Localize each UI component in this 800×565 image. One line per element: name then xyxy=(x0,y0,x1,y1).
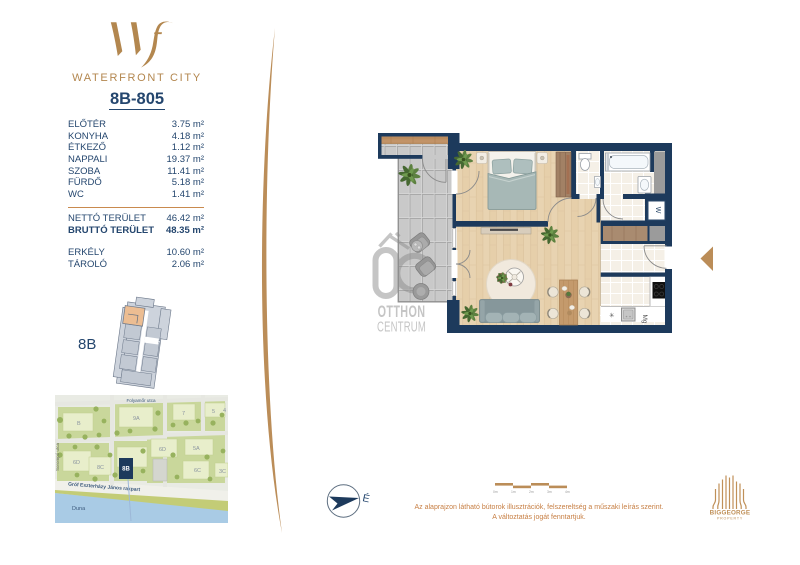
svg-text:9A: 9A xyxy=(133,416,140,422)
svg-text:3C: 3C xyxy=(219,469,226,475)
svg-text:5A: 5A xyxy=(193,446,200,452)
svg-text:7: 7 xyxy=(182,411,185,417)
svg-text:8C: 8C xyxy=(97,465,104,471)
svg-text:6D: 6D xyxy=(73,460,80,466)
svg-text:6C: 6C xyxy=(194,468,201,474)
svg-text:PROPERTY: PROPERTY xyxy=(717,517,743,521)
svg-text:Duna: Duna xyxy=(72,506,86,512)
svg-text:1m: 1m xyxy=(511,490,516,494)
svg-text:5: 5 xyxy=(212,409,215,415)
svg-text:BIGGEORGE: BIGGEORGE xyxy=(710,510,751,517)
svg-text:6D: 6D xyxy=(159,447,166,453)
svg-text:B: B xyxy=(77,421,81,427)
svg-text:0m: 0m xyxy=(493,490,498,494)
svg-text:8B: 8B xyxy=(122,467,130,473)
svg-text:✳: ✳ xyxy=(609,312,615,320)
svg-text:CENTRUM: CENTRUM xyxy=(377,318,426,335)
svg-text:Sorompó utca: Sorompó utca xyxy=(55,442,60,471)
svg-text:3m: 3m xyxy=(547,490,552,494)
svg-text:Folyamőr utca: Folyamőr utca xyxy=(126,398,156,403)
svg-text:4: 4 xyxy=(223,408,226,414)
svg-text:2m: 2m xyxy=(529,490,534,494)
svg-text:W: W xyxy=(654,207,661,214)
svg-text:Mg: Mg xyxy=(641,315,648,324)
svg-text:4m: 4m xyxy=(565,490,570,494)
